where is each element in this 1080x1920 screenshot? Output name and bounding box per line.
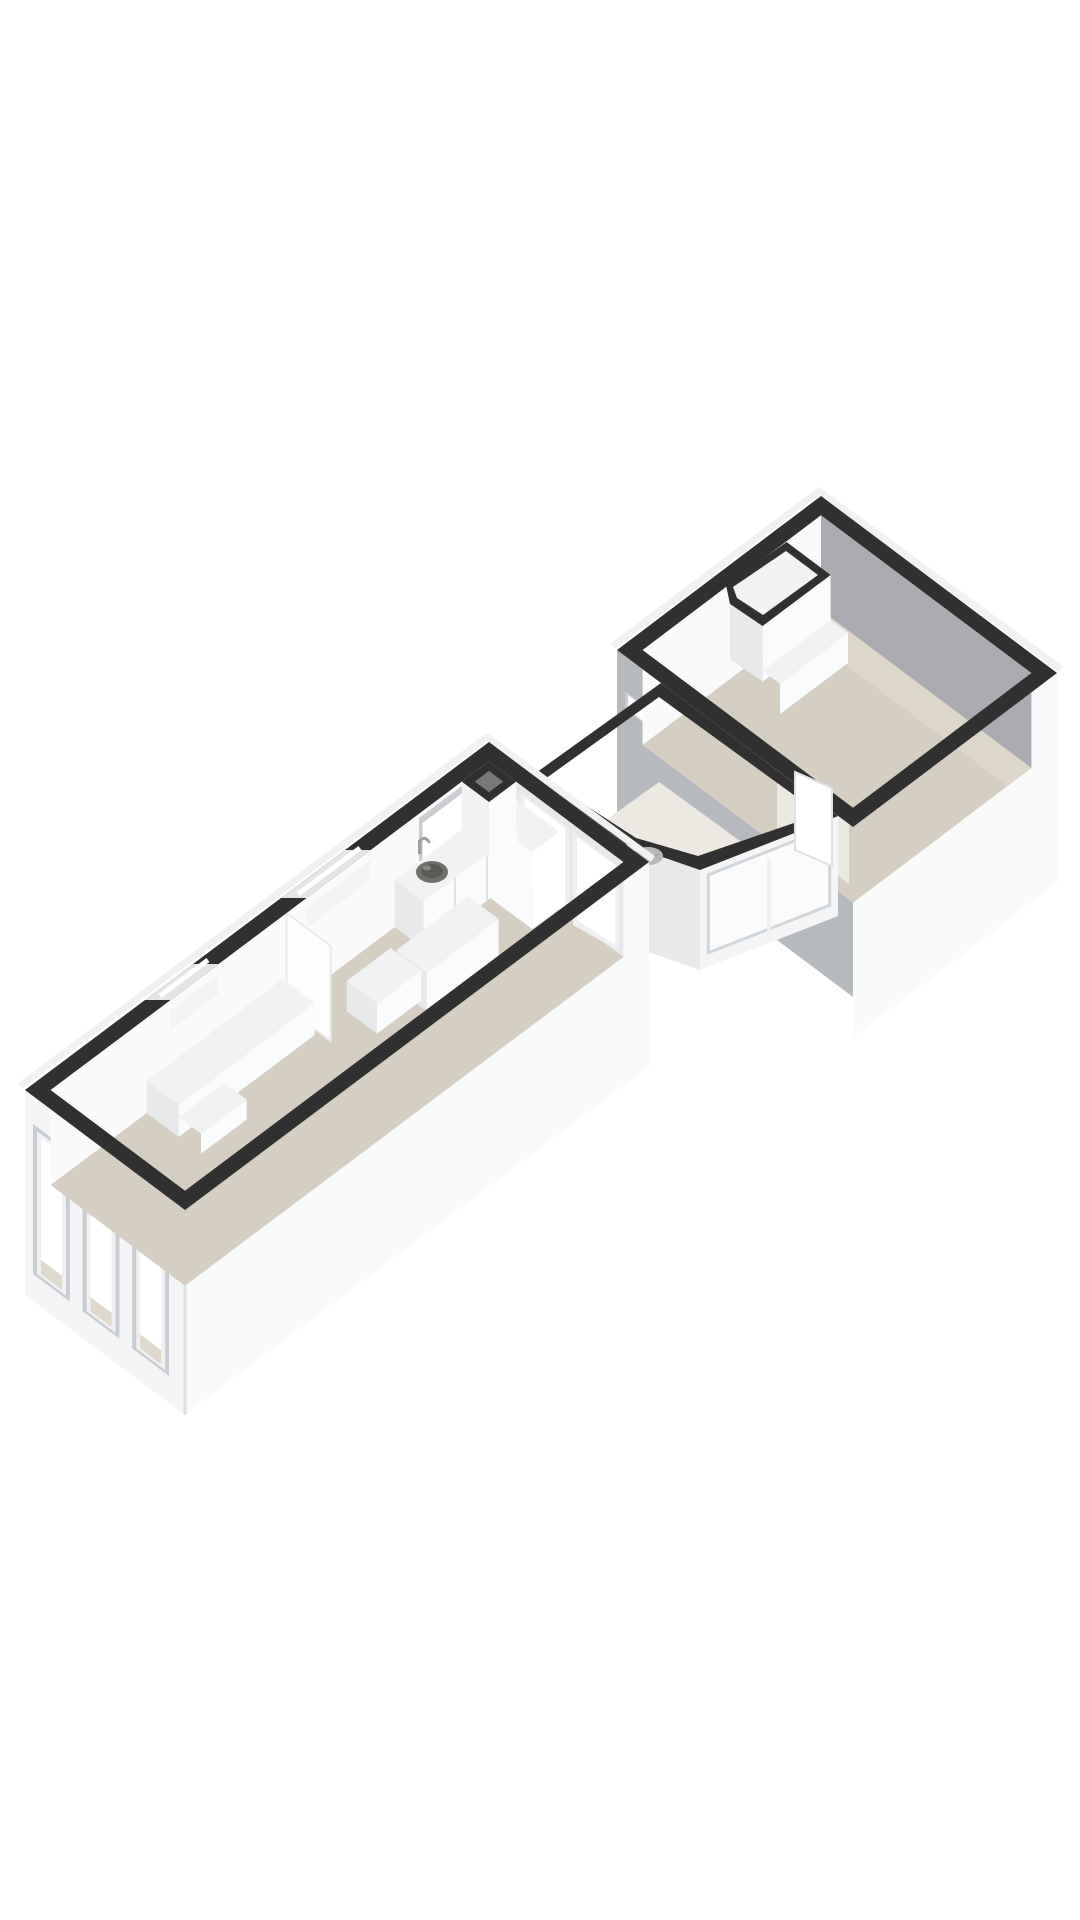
sink <box>416 861 448 883</box>
main-room <box>20 737 653 1415</box>
faucet-riser <box>418 840 422 854</box>
floorplan-3d-render <box>0 0 1080 1920</box>
sink-highlight <box>423 866 431 871</box>
duct-column <box>462 761 516 857</box>
floorplan-canvas <box>0 0 1080 1920</box>
